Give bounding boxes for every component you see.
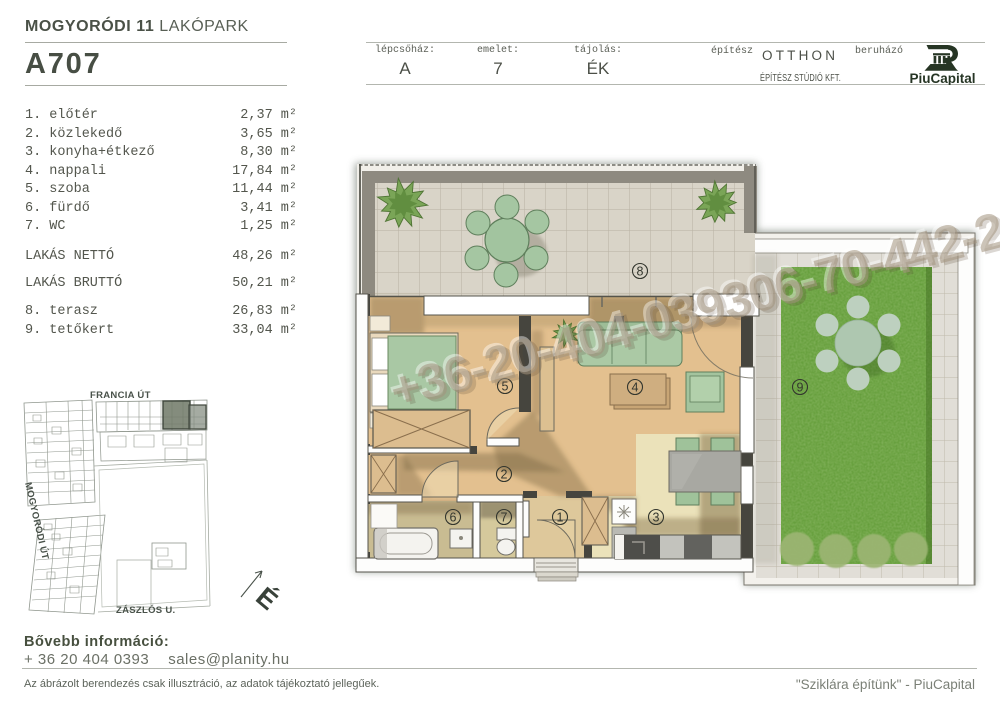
svg-text:2: 2 <box>501 468 508 482</box>
svg-text:MOGYORÓDI ÚT: MOGYORÓDI ÚT <box>22 481 51 561</box>
svg-text:1: 1 <box>557 511 564 525</box>
svg-text:ZÁSZLÓS U.: ZÁSZLÓS U. <box>116 604 175 616</box>
svg-text:7: 7 <box>501 511 508 525</box>
svg-text:É: É <box>250 581 284 616</box>
svg-text:4: 4 <box>632 381 639 395</box>
svg-text:FRANCIA ÚT: FRANCIA ÚT <box>90 389 151 401</box>
svg-text:3: 3 <box>653 511 660 525</box>
svg-text:8: 8 <box>637 265 644 279</box>
svg-text:6: 6 <box>450 511 457 525</box>
svg-text:9: 9 <box>797 381 804 395</box>
